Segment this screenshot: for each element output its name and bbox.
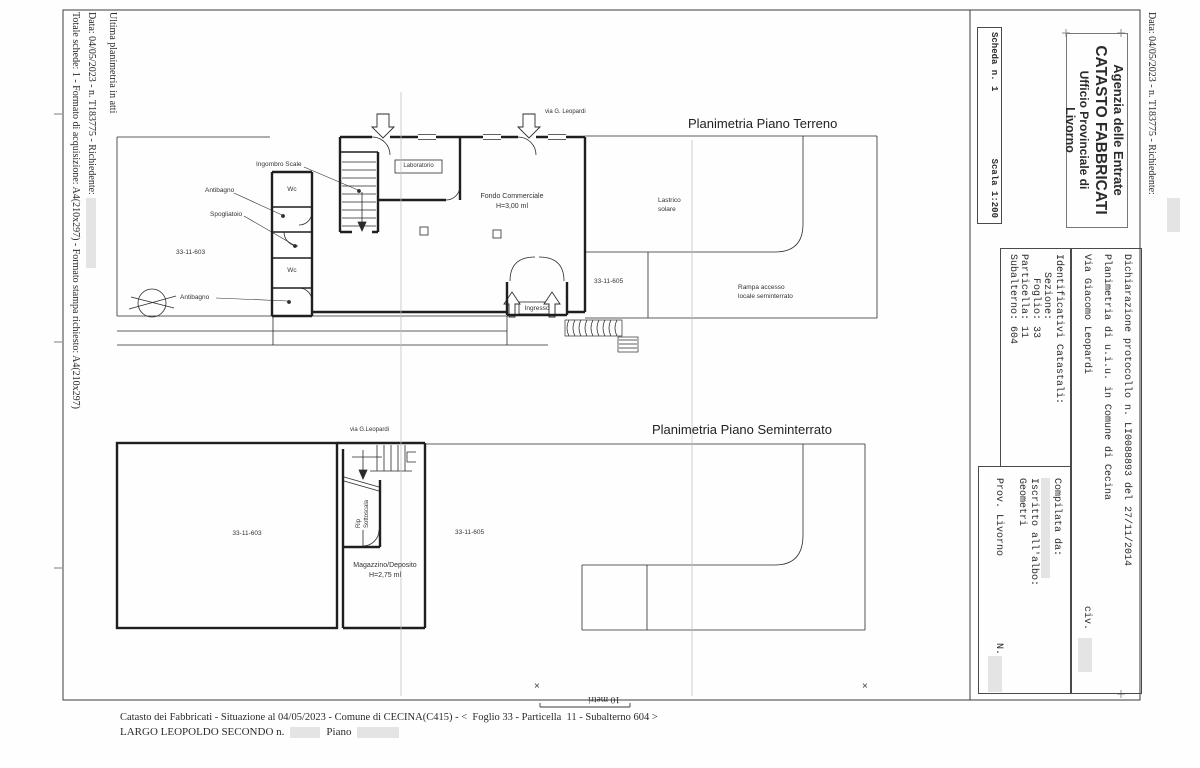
label-rampa-line2: locale seminterrato bbox=[738, 292, 793, 301]
compilata-albo: Geometri bbox=[1016, 478, 1028, 690]
label-laboratorio: Laboratorio bbox=[395, 162, 442, 171]
label-lastrico: Lastrico solare bbox=[658, 196, 681, 214]
margin-note-data-left-text: Data: 04/05/2023 - n. T183775 - Richiede… bbox=[86, 12, 97, 195]
margin-note-data-left: Data: 04/05/2023 - n. T183775 - Richiede… bbox=[86, 12, 97, 268]
dichiarazione-line1: Dichiarazione protocollo n. LI0088893 de… bbox=[1116, 254, 1136, 686]
label-lastrico-line1: Lastrico bbox=[658, 196, 681, 205]
identificativi-subalterno: Subalterno: 604 bbox=[1007, 254, 1019, 459]
agency-line2: CATASTO FABBRICATI bbox=[1091, 36, 1110, 224]
label-rip-line1: Rip bbox=[355, 500, 363, 528]
label-antibagno-2: Antibagno bbox=[180, 293, 209, 302]
margin-note-data-right-text: Data: 04/05/2023 - n. T183775 - Richiede… bbox=[1146, 12, 1157, 195]
scheda-number: Scheda n. 1 bbox=[989, 32, 999, 91]
flipped-scale-note: 10 metri bbox=[576, 694, 632, 704]
label-unit-603-seminterrato: 33-11-603 bbox=[222, 529, 272, 538]
compilata-prov: Prov. Livorno bbox=[993, 478, 1004, 556]
redacted-civ-number bbox=[1078, 638, 1092, 672]
margin-note-totale-text: Totale schede: 1 - Formato di acquisizio… bbox=[70, 12, 81, 409]
margin-note-ultima-text: Ultima planimetria in atti bbox=[107, 12, 118, 113]
label-rampa: Rampa accesso locale seminterrato bbox=[738, 283, 793, 301]
scheda-scala: Scheda n. 1 Scala 1:200 bbox=[989, 32, 999, 218]
identificativi-sezione: Sezione: bbox=[1041, 254, 1053, 459]
seminterrato-street-label: via G.Leopardi bbox=[350, 426, 389, 435]
label-antibagno-1: Antibagno bbox=[205, 186, 234, 195]
margin-note-data-right: Data: 04/05/2023 - n. T183775 - Richiede… bbox=[1146, 12, 1157, 195]
footer-street: LARGO LEOPOLDO SECONDO n. bbox=[120, 726, 284, 738]
dichiarazione-line2: Planimetria di u.i.u. in Comune di Cecin… bbox=[1096, 254, 1116, 686]
registration-cross-left: × bbox=[534, 681, 540, 692]
redacted-street-number bbox=[290, 727, 320, 738]
terreno-title: Planimetria Piano Terreno bbox=[688, 116, 837, 131]
label-spogliatoio: Spogliatoio bbox=[210, 210, 242, 219]
margin-note-totale: Totale schede: 1 - Formato di acquisizio… bbox=[70, 12, 81, 409]
terreno-street-label: via G. Leopardi bbox=[545, 108, 586, 117]
footer-piano-label: Piano bbox=[326, 726, 351, 738]
redacted-register-number bbox=[988, 656, 1002, 692]
agency-line3: Ufficio Provinciale di bbox=[1077, 36, 1091, 224]
dichiarazione-line3: Via Giacomo Leopardiciv. bbox=[1076, 254, 1096, 686]
redacted-requester-right bbox=[1167, 198, 1180, 232]
agency-line4: Livorno bbox=[1062, 36, 1077, 224]
label-magazzino-line1: Magazzino/Deposito bbox=[340, 561, 430, 571]
label-unit-605-seminterrato: 33-11-605 bbox=[455, 528, 484, 537]
redacted-piano-value bbox=[357, 727, 399, 738]
compilata-block: Compilata da: Iscritto all'albo: Geometr… bbox=[992, 478, 1062, 690]
registration-cross-right: × bbox=[862, 681, 868, 692]
label-fondo-commerciale: Fondo Commerciale H=3,00 ml bbox=[462, 192, 562, 212]
footer-line2: LARGO LEOPOLDO SECONDO n.Piano bbox=[120, 726, 399, 738]
label-lastrico-line2: solare bbox=[658, 205, 681, 214]
label-rampa-line1: Rampa accesso bbox=[738, 283, 793, 292]
label-fondo-line2: H=3,00 ml bbox=[462, 202, 562, 212]
label-fondo-line1: Fondo Commerciale bbox=[462, 192, 562, 202]
identificativi-particella: Particella: 11 bbox=[1018, 254, 1030, 459]
dichiarazione-civ: civ. bbox=[1081, 606, 1092, 630]
label-unit-605-terreno: 33-11-605 bbox=[594, 277, 623, 286]
identificativi-block: Identificativi Catastali: Sezione: Fogli… bbox=[1007, 254, 1065, 459]
label-ingombro-scale: Ingombro Scale bbox=[256, 160, 302, 169]
redacted-requester-left bbox=[86, 198, 96, 268]
scala-value: Scala 1:200 bbox=[989, 159, 999, 218]
label-rip-sottoscala: Rip Sottoscala bbox=[355, 500, 371, 528]
dichiarazione-block: Dichiarazione protocollo n. LI0088893 de… bbox=[1076, 254, 1136, 686]
compilata-title: Compilata da: bbox=[1051, 478, 1063, 690]
identificativi-title: Identificativi Catastali: bbox=[1053, 254, 1065, 459]
margin-note-ultima: Ultima planimetria in atti bbox=[107, 12, 118, 113]
label-rip-line2: Sottoscala bbox=[363, 500, 371, 528]
seminterrato-title: Planimetria Piano Seminterrato bbox=[652, 422, 832, 437]
scan-fold-line bbox=[400, 92, 402, 696]
label-ingresso: Ingresso bbox=[519, 304, 555, 313]
label-magazzino-line2: H=2,75 ml bbox=[340, 571, 430, 581]
redacted-compiler-name bbox=[1042, 478, 1051, 578]
agency-line1: Agenzia delle Entrate bbox=[1110, 36, 1126, 224]
scan-fold-line bbox=[691, 140, 693, 696]
label-wc-2: Wc bbox=[278, 266, 306, 275]
footer-line1: Catasto dei Fabbricati - Situazione al 0… bbox=[120, 712, 658, 723]
cadastral-document-page: Ultima planimetria in atti Data: 04/05/2… bbox=[0, 0, 1200, 768]
dichiarazione-street: Via Giacomo Leopardi bbox=[1081, 254, 1092, 374]
label-magazzino: Magazzino/Deposito H=2,75 ml bbox=[340, 561, 430, 581]
label-wc-1: Wc bbox=[278, 185, 306, 194]
compilata-iscritto: Iscritto all'albo: bbox=[1027, 478, 1039, 690]
identificativi-foglio: Foglio: 33 bbox=[1030, 254, 1042, 459]
compilata-n-label: N. bbox=[993, 643, 1004, 655]
agency-header: Agenzia delle Entrate CATASTO FABBRICATI… bbox=[1062, 36, 1126, 224]
label-unit-603-terreno: 33-11-603 bbox=[176, 248, 205, 257]
